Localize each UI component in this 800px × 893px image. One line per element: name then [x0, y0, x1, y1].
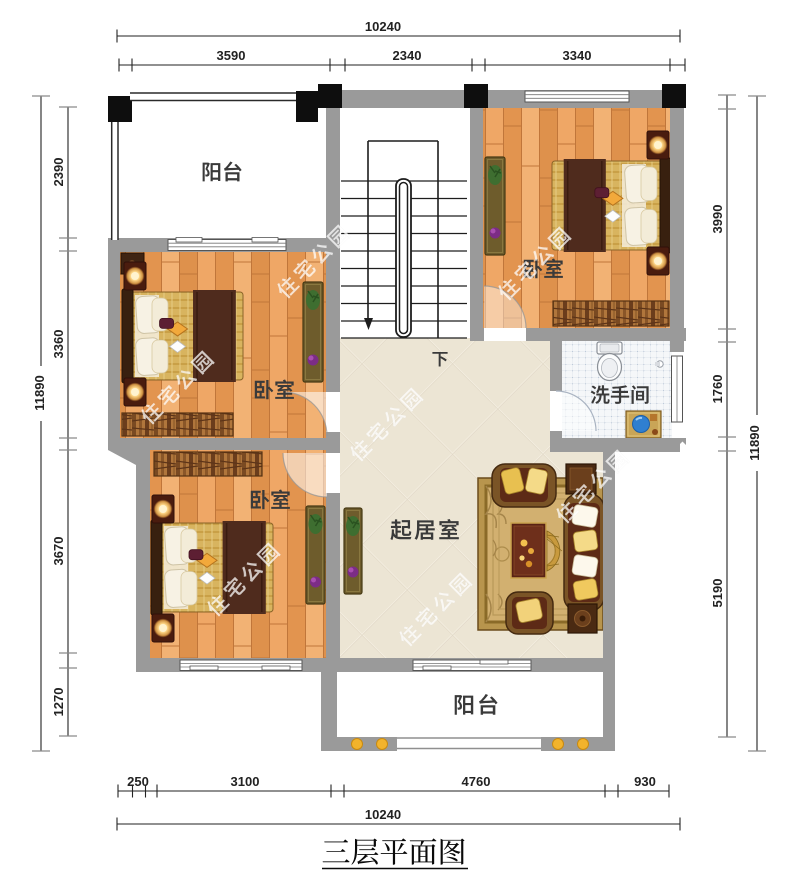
- svg-text:10240: 10240: [365, 807, 401, 822]
- svg-text:3340: 3340: [563, 48, 592, 63]
- svg-text:3360: 3360: [51, 330, 66, 359]
- svg-text:1270: 1270: [51, 688, 66, 717]
- svg-text:4760: 4760: [462, 774, 491, 789]
- svg-text:11890: 11890: [747, 425, 762, 460]
- svg-text:5190: 5190: [710, 579, 725, 608]
- svg-text:3990: 3990: [710, 205, 725, 234]
- svg-text:3590: 3590: [217, 48, 246, 63]
- svg-text:2390: 2390: [51, 158, 66, 187]
- svg-text:3670: 3670: [51, 537, 66, 566]
- svg-text:10240: 10240: [365, 19, 401, 34]
- svg-text:250: 250: [127, 774, 149, 789]
- svg-text:2340: 2340: [393, 48, 422, 63]
- svg-text:3100: 3100: [231, 774, 260, 789]
- svg-text:11890: 11890: [32, 375, 47, 410]
- svg-text:930: 930: [634, 774, 656, 789]
- svg-text:1760: 1760: [710, 375, 725, 404]
